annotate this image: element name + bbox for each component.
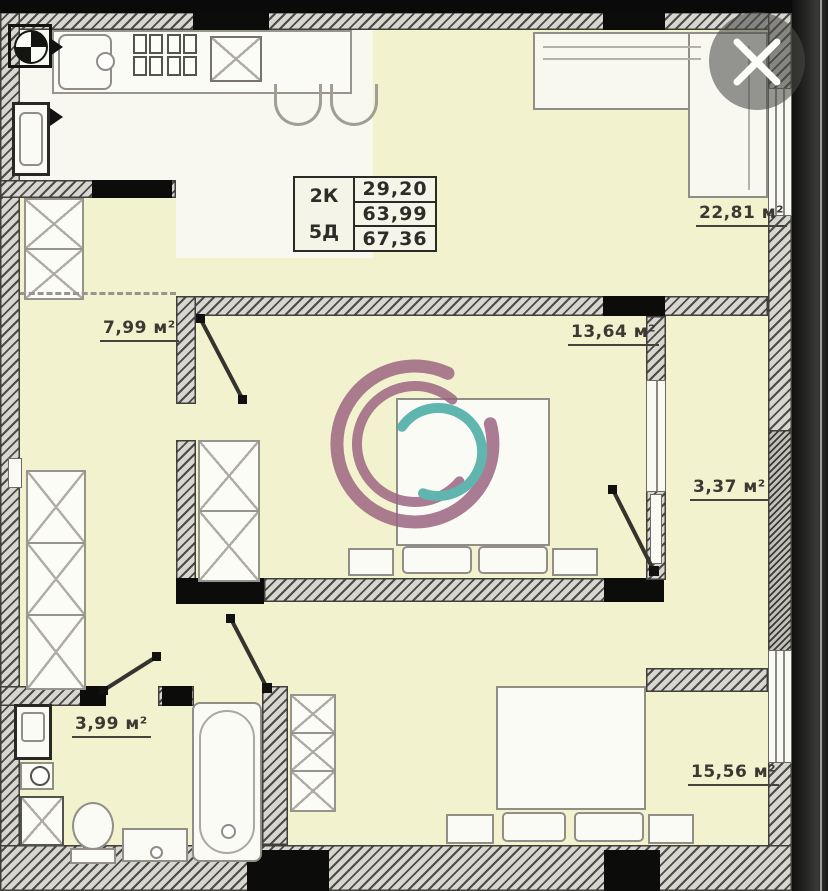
door-leaf: [104, 657, 156, 690]
logo-teal-crescent: [402, 408, 482, 496]
close-button[interactable]: [709, 12, 805, 110]
room-label-living-kitchen: 22,81 м²: [696, 203, 787, 227]
room-label-bedroom-2: 15,56 м²: [688, 762, 779, 786]
room-label-loggia: 3,37 м²: [690, 477, 769, 501]
photo-right-highlight: [820, 0, 822, 891]
room-label-bathroom: 3,99 м²: [72, 714, 151, 738]
floor-area-value: 63,99: [355, 203, 435, 228]
watermark-logo: [320, 352, 520, 552]
area-info-table: 2К 5Д 29,20 63,99 67,36: [293, 176, 437, 252]
photo-right-band: [792, 0, 828, 891]
room-label-hall: 7,99 м²: [100, 318, 179, 342]
door-hinge: [238, 395, 247, 404]
door-leaf: [613, 490, 654, 571]
door-hinge: [99, 686, 108, 695]
door-hinge: [608, 485, 617, 494]
door-hinge: [262, 683, 272, 693]
section-code: 5Д: [309, 221, 339, 243]
door-leaf: [201, 320, 243, 400]
total-area-value: 67,36: [355, 227, 435, 250]
floorplan-photo: 2К 5Д 29,20 63,99 67,36 22,81 м² 7,99 м²…: [0, 0, 828, 891]
flat-type-code: 2К: [310, 185, 339, 207]
door-hinge: [196, 314, 205, 323]
door-hinge: [649, 566, 659, 576]
living-area-value: 29,20: [355, 178, 435, 203]
door-hinge: [226, 614, 235, 623]
door-leaf: [231, 619, 267, 688]
room-label-bedroom-1: 13,64 м²: [568, 322, 659, 346]
close-icon: [709, 12, 805, 110]
photo-top-band: [0, 0, 828, 13]
door-hinge: [152, 652, 161, 661]
